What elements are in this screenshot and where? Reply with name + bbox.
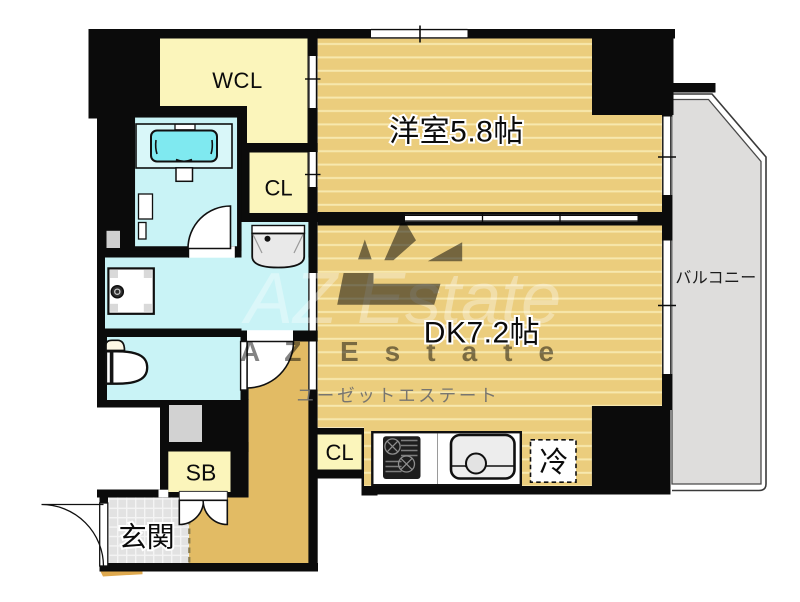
svg-text:洋室5.8帖: 洋室5.8帖 — [389, 116, 524, 149]
svg-text:WCL: WCL — [212, 68, 262, 93]
svg-text:DK7.2帖: DK7.2帖 — [424, 317, 540, 350]
svg-text:ユーゼットエステート: ユーゼットエステート — [297, 386, 500, 406]
svg-text:AZ: AZ — [240, 336, 325, 367]
svg-text:バルコニー: バルコニー — [675, 270, 756, 287]
svg-text:SB: SB — [186, 460, 217, 486]
svg-text:玄関: 玄関 — [119, 522, 175, 553]
svg-text:CL: CL — [264, 176, 292, 201]
svg-text:冷: 冷 — [539, 446, 568, 479]
svg-text:CL: CL — [325, 440, 353, 465]
